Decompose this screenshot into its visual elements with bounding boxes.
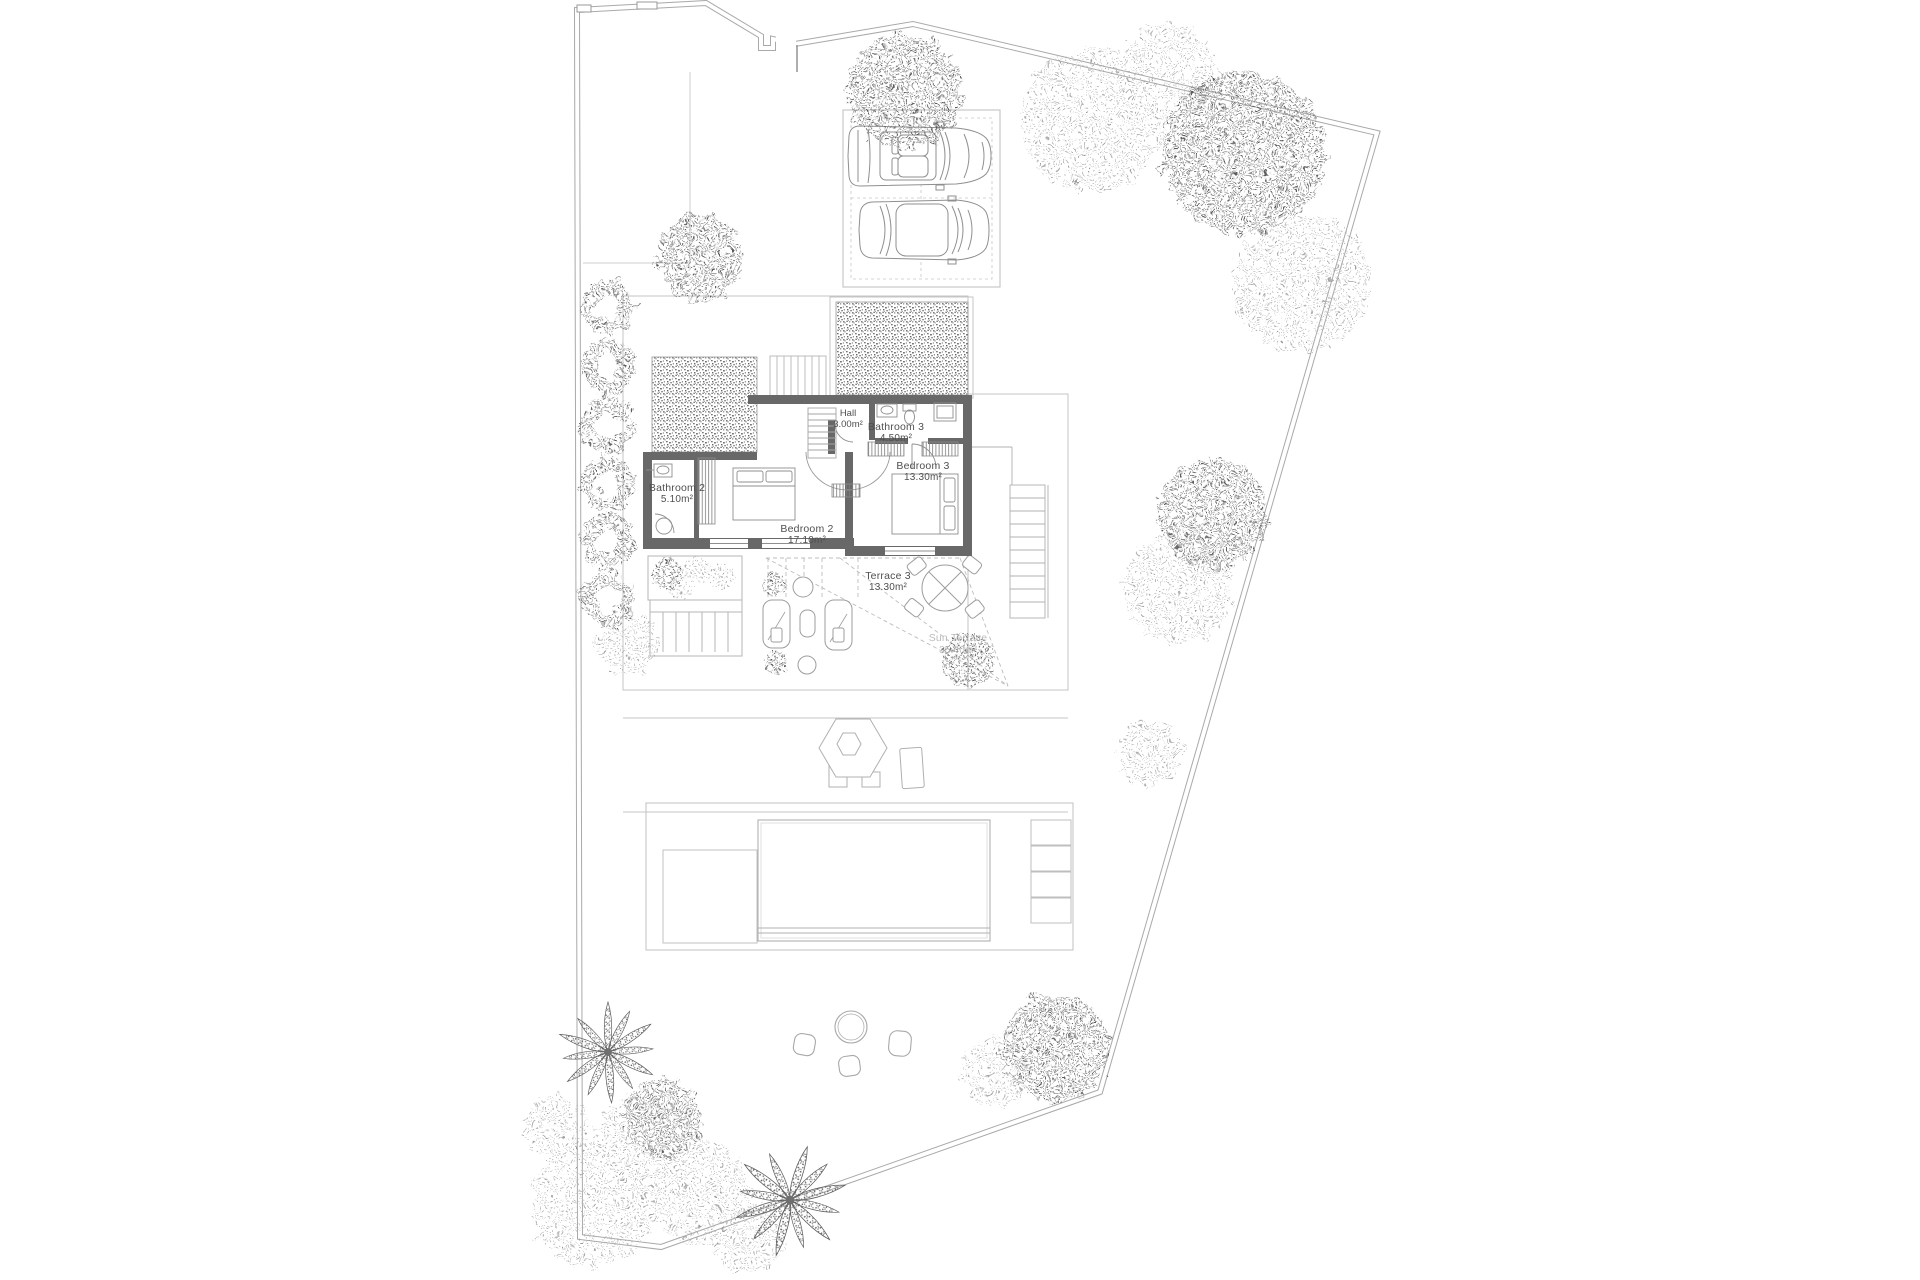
car-coupe <box>859 196 989 264</box>
room-area-hall: 3.00m² <box>833 419 863 430</box>
stepping-stones <box>792 1011 912 1077</box>
dining-table-set <box>903 554 985 619</box>
green-roof-top <box>836 302 968 395</box>
room-label-bathroom-3: Bathroom 3 <box>868 421 924 433</box>
shrub <box>941 633 995 687</box>
pergola-parasol <box>819 719 924 789</box>
site-plan-drawing: Hall 3.00m² Bathroom 3 4.50m² Bedroom 3 … <box>0 0 1920 1280</box>
pool <box>758 820 990 941</box>
shrub <box>961 1038 1029 1106</box>
room-area-terrace-3: 13.30m² <box>869 582 908 593</box>
roof-stair <box>770 356 826 396</box>
tree <box>1232 212 1372 352</box>
hedge-row <box>588 287 628 619</box>
exterior-stair <box>970 447 1048 618</box>
site-plan-page: Hall 3.00m² Bathroom 3 4.50m² Bedroom 3 … <box>0 0 1920 1280</box>
trellis-deck <box>650 600 742 656</box>
tree <box>1020 48 1164 192</box>
room-label-hall: Hall <box>840 408 856 419</box>
room-label-bathroom-2: Bathroom 2 <box>649 482 705 494</box>
shrub <box>597 613 659 675</box>
room-area-bedroom-3: 13.30m² <box>904 472 943 483</box>
boundary-post <box>577 5 591 12</box>
pool-steps <box>1031 820 1071 923</box>
pool-area <box>646 803 1073 950</box>
tree <box>1123 533 1233 643</box>
shrub <box>530 1143 654 1267</box>
planter-shrub <box>709 564 735 590</box>
room-area-bathroom-2: 5.10m² <box>661 494 694 505</box>
tree <box>657 215 743 301</box>
room-label-bedroom-2: Bedroom 2 <box>780 523 833 535</box>
planter-shrub <box>669 576 693 600</box>
shrub <box>1117 720 1183 786</box>
bedroom3-bed <box>892 474 958 534</box>
green-roof-left <box>652 357 757 452</box>
room-area-bathroom-3: 4.50m² <box>880 433 913 444</box>
boundary-post <box>637 2 657 9</box>
bedroom2-bed <box>733 468 795 520</box>
room-label-terrace-3: Terrace 3 <box>865 570 911 582</box>
tree <box>1161 71 1325 235</box>
room-area-bedroom-2: 17.10m² <box>788 535 827 546</box>
pot-plant <box>763 572 787 596</box>
pool-platform <box>663 850 757 943</box>
pot-plant <box>764 650 788 674</box>
room-label-bedroom-3: Bedroom 3 <box>896 460 949 472</box>
entrance-gap <box>776 30 796 53</box>
tree <box>847 34 963 150</box>
shrub <box>524 1096 588 1160</box>
